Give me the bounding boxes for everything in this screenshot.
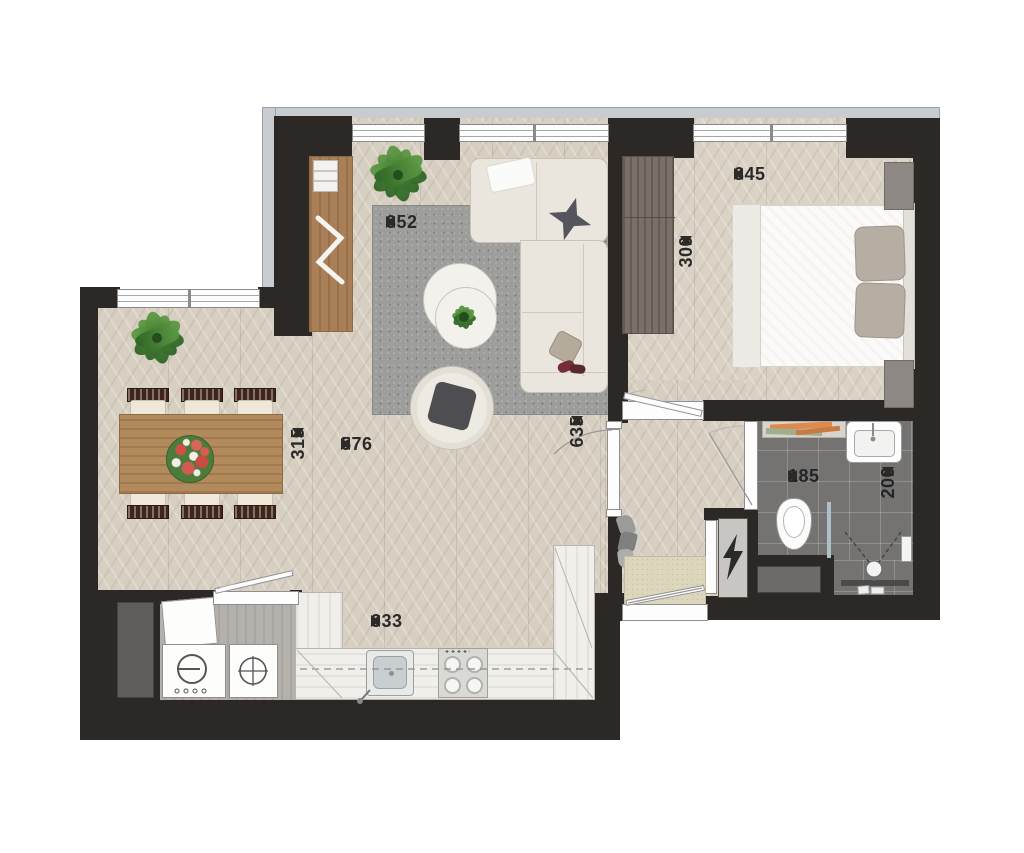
sideboard-decor <box>313 160 338 192</box>
slippers <box>569 364 586 374</box>
bed-pillow <box>854 225 906 282</box>
bathroom-door-leaf[interactable] <box>744 421 758 510</box>
kitchen-counter-right <box>553 545 595 700</box>
burner-icon <box>444 677 461 694</box>
arrow-right-icon <box>788 470 797 482</box>
window-mullion <box>770 125 773 141</box>
bathroom-sink <box>846 421 902 463</box>
plant <box>355 138 441 212</box>
dining-chair <box>181 491 223 520</box>
shower-glass <box>827 502 831 558</box>
arrow-right-icon <box>341 438 350 450</box>
table-plant <box>446 299 482 335</box>
stove-controls <box>444 650 470 653</box>
dimension-living-rug-width: 352 <box>386 211 466 233</box>
wall <box>594 593 620 738</box>
dimension-open-area-depth: 635 <box>566 416 588 498</box>
window <box>459 124 609 142</box>
stove <box>438 648 488 698</box>
chair-back <box>234 505 276 519</box>
dryer <box>229 644 278 698</box>
chair-back <box>127 505 169 519</box>
utility-door-threshold[interactable] <box>213 591 299 605</box>
wall <box>258 287 278 308</box>
wall <box>80 592 116 708</box>
dining-chair <box>234 388 276 416</box>
dimension-bedroom-width: 345 <box>734 163 814 185</box>
wardrobe-seam <box>623 217 675 218</box>
plant <box>117 300 197 376</box>
living-hall-door-frame <box>606 509 622 517</box>
headboard <box>903 203 915 369</box>
window <box>693 124 847 142</box>
burner-icon <box>466 656 483 673</box>
arrow-down-icon <box>571 416 583 425</box>
arrow-down-icon <box>882 467 894 476</box>
arrow-down-icon <box>292 428 304 437</box>
chair-back <box>181 505 223 519</box>
bed-pillow <box>854 282 906 339</box>
sofa-seam <box>536 162 537 240</box>
sink-drain <box>389 671 394 676</box>
burner-icon <box>444 656 461 673</box>
arrow-right-icon <box>386 216 395 228</box>
nightstand <box>884 360 914 408</box>
wall <box>274 116 312 336</box>
kitchen-sink <box>366 650 414 696</box>
arrow-right-icon <box>734 168 743 180</box>
meter-closet <box>718 518 748 598</box>
nightstand <box>884 162 914 210</box>
meter-closet-door <box>705 520 717 594</box>
wall <box>913 118 940 620</box>
arrow-down-icon <box>680 236 692 245</box>
dining-chair <box>127 491 169 520</box>
floor-plan: 352 345 300 576 635 315 333 185 200 <box>0 0 1024 853</box>
dining-chair <box>181 388 223 416</box>
window-mullion <box>533 125 536 141</box>
front-door-threshold[interactable] <box>622 604 708 621</box>
living-hall-door-leaf[interactable] <box>607 429 620 511</box>
service-shaft <box>117 602 154 698</box>
shower-bar <box>841 580 909 586</box>
bed-fold <box>733 205 761 367</box>
wardrobe <box>622 156 674 334</box>
sofa-seam <box>583 244 584 376</box>
dining-chair <box>127 388 169 416</box>
burner-icon <box>466 677 483 694</box>
dimension-dining-depth: 315 <box>287 428 309 510</box>
service-shaft <box>757 566 821 593</box>
dimension-bedroom-depth: 300 <box>675 236 697 318</box>
arrow-right-icon <box>371 615 380 627</box>
dimension-bathroom-depth: 200 <box>877 467 899 547</box>
flower-bouquet <box>166 435 214 483</box>
toilet-bowl <box>783 506 805 538</box>
sofa-seam <box>522 312 583 313</box>
living-hall-door-frame <box>606 421 622 429</box>
shower-shelf <box>901 536 912 562</box>
dimension-open-area-width: 576 <box>341 433 421 455</box>
dimension-bathroom-width: 185 <box>788 465 870 487</box>
washer-lid <box>161 597 218 648</box>
dimension-kitchen-width: 333 <box>371 610 445 632</box>
wall <box>80 700 620 740</box>
washing-machine <box>162 644 226 698</box>
wall <box>832 595 940 620</box>
sink-basin <box>854 430 895 457</box>
dining-chair <box>234 491 276 520</box>
